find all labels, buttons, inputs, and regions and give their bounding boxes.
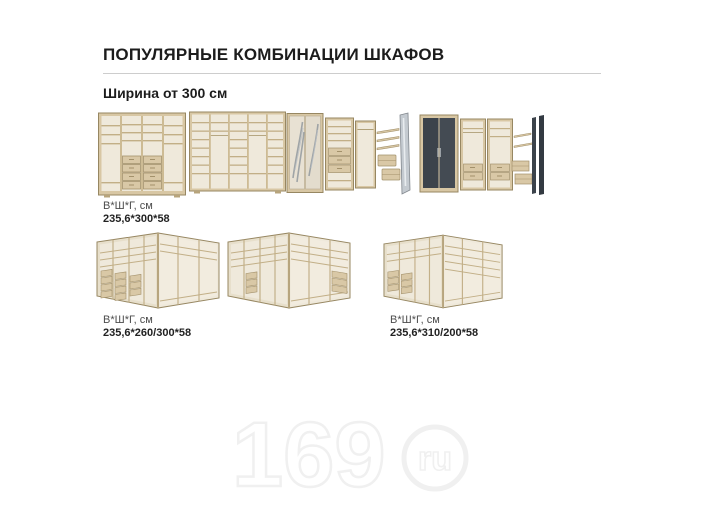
dims-units: В*Ш*Г, см — [390, 314, 478, 327]
watermark-169ru-logo: 169 ru — [230, 406, 475, 508]
product-wardrobe-shelving-300[interactable] — [189, 109, 286, 198]
product-wardrobe-dark-combo-300[interactable] — [419, 106, 546, 200]
product-corner-wardrobe-middle[interactable] — [227, 231, 353, 311]
dims-units: В*Ш*Г, см — [103, 200, 170, 213]
wardrobe-shelving-image — [189, 109, 286, 198]
site-watermark: 169 ru — [230, 406, 475, 513]
dims-value: 235,6*300*58 — [103, 213, 170, 226]
product-wardrobe-straight-300[interactable] — [98, 112, 186, 199]
section-subtitle: Ширина от 300 см — [103, 85, 227, 101]
wardrobe-dark-combo-image — [419, 106, 546, 200]
dims-units: В*Ш*Г, см — [103, 314, 191, 327]
product-corner-wardrobe-260-300[interactable] — [96, 231, 222, 311]
corner-wardrobe-1-image — [96, 231, 222, 311]
title-divider — [103, 73, 601, 74]
watermark-number: 169 — [232, 406, 386, 506]
dims-label-row1: В*Ш*Г, см 235,6*300*58 — [103, 200, 170, 227]
corner-wardrobe-3-image — [383, 233, 505, 311]
dims-value: 235,6*260/300*58 — [103, 327, 191, 340]
corner-wardrobe-2-image — [227, 231, 353, 311]
dims-value: 235,6*310/200*58 — [390, 327, 478, 340]
watermark-domain: ru — [418, 440, 452, 478]
wardrobe-straight-image — [98, 112, 186, 199]
catalog-page: ПОПУЛЯРНЫЕ КОМБИНАЦИИ ШКАФОВ Ширина от 3… — [0, 0, 702, 523]
page-title: ПОПУЛЯРНЫЕ КОМБИНАЦИИ ШКАФОВ — [103, 45, 444, 65]
dims-label-row2-right: В*Ш*Г, см 235,6*310/200*58 — [390, 314, 478, 341]
product-wardrobe-mirror-combo-300[interactable] — [286, 106, 413, 200]
product-corner-wardrobe-310-200[interactable] — [383, 233, 505, 311]
wardrobe-mirror-combo-image — [286, 106, 413, 200]
dims-label-row2-left: В*Ш*Г, см 235,6*260/300*58 — [103, 314, 191, 341]
